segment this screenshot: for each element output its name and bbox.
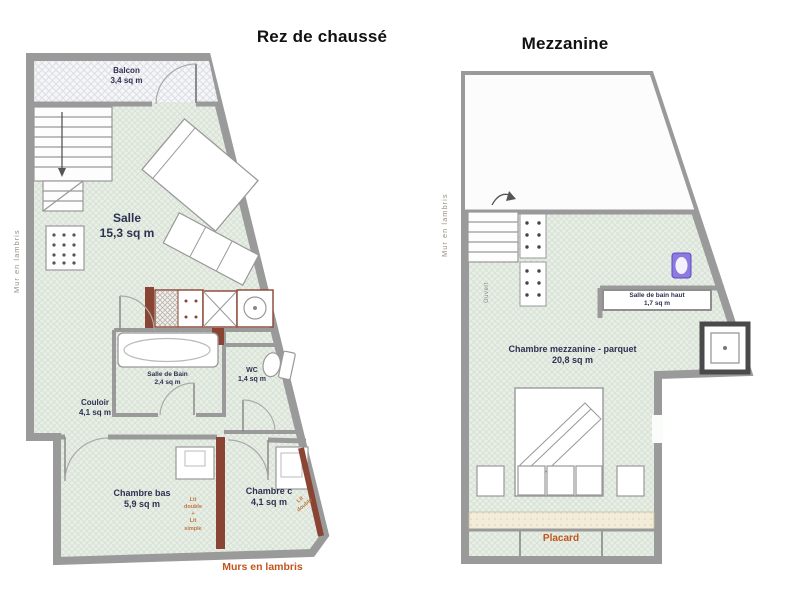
ouvert-label: Ouvert bbox=[484, 282, 490, 303]
washbasin bbox=[672, 253, 691, 278]
bathroom-area: 2,4 sq m bbox=[120, 379, 215, 387]
shower bbox=[702, 324, 748, 372]
mezzanine-title: Mezzanine bbox=[465, 34, 665, 54]
kitchen-prep-table bbox=[203, 291, 237, 327]
salle-label: Salle 15,3 sq m bbox=[72, 211, 182, 241]
salle-area: 15,3 sq m bbox=[72, 226, 182, 241]
window-opening bbox=[652, 415, 663, 443]
murs-en-lambris-label: Murs en lambris bbox=[190, 561, 335, 574]
floor-strip bbox=[469, 512, 654, 530]
mezzanine-plan bbox=[461, 75, 748, 560]
floor-plans-canvas: Rez de chaussé Mezzanine Balcon 3,4 sq m… bbox=[0, 0, 800, 600]
chambre-bas-desk bbox=[176, 447, 214, 479]
upper-bathroom-area: 1,7 sq m bbox=[606, 300, 708, 308]
wc-name: WC bbox=[223, 367, 281, 376]
kitchen-oven bbox=[237, 290, 273, 327]
lit-double-simple-note: Lit double + Lit simple bbox=[180, 497, 206, 533]
couloir-name: Couloir bbox=[55, 398, 135, 408]
bathroom-name: Salle de Bain bbox=[120, 371, 215, 379]
chambre-mezzanine-name: Chambre mezzanine - parquet bbox=[470, 344, 675, 355]
mezzanine-staircase bbox=[468, 212, 518, 262]
bathtub bbox=[118, 333, 218, 367]
nightstand-right bbox=[617, 466, 644, 496]
chambre-mezzanine-label: Chambre mezzanine - parquet 20,8 sq m bbox=[470, 344, 675, 367]
mur-en-lambris-mezzanine-label: Mur en lambris bbox=[440, 193, 449, 257]
upper-bathroom-name: Salle de bain haut bbox=[606, 292, 708, 300]
couloir-area: 4,1 sq m bbox=[55, 408, 135, 418]
balcony-label: Balcon 3,4 sq m bbox=[79, 66, 174, 86]
ground-floor-title: Rez de chaussé bbox=[222, 27, 422, 47]
mur-en-lambris-left-label: Mur en lambris bbox=[12, 229, 21, 293]
balcony-name: Balcon bbox=[79, 66, 174, 76]
placard-label: Placard bbox=[520, 533, 602, 546]
wc-area: 1,4 sq m bbox=[223, 376, 281, 385]
kitchen-sink-unit bbox=[155, 290, 203, 327]
bathroom-label: Salle de Bain 2,4 sq m bbox=[120, 371, 215, 387]
double-bed bbox=[515, 388, 603, 496]
upper-bathroom-label: Salle de bain haut 1,7 sq m bbox=[602, 289, 712, 311]
salle-name: Salle bbox=[72, 211, 182, 226]
chambre-mezzanine-area: 20,8 sq m bbox=[470, 355, 675, 366]
wc-label: WC 1,4 sq m bbox=[223, 367, 281, 385]
couloir-label: Couloir 4,1 sq m bbox=[55, 398, 135, 418]
nightstand-left bbox=[477, 466, 504, 496]
balcony-area: 3,4 sq m bbox=[79, 76, 174, 86]
